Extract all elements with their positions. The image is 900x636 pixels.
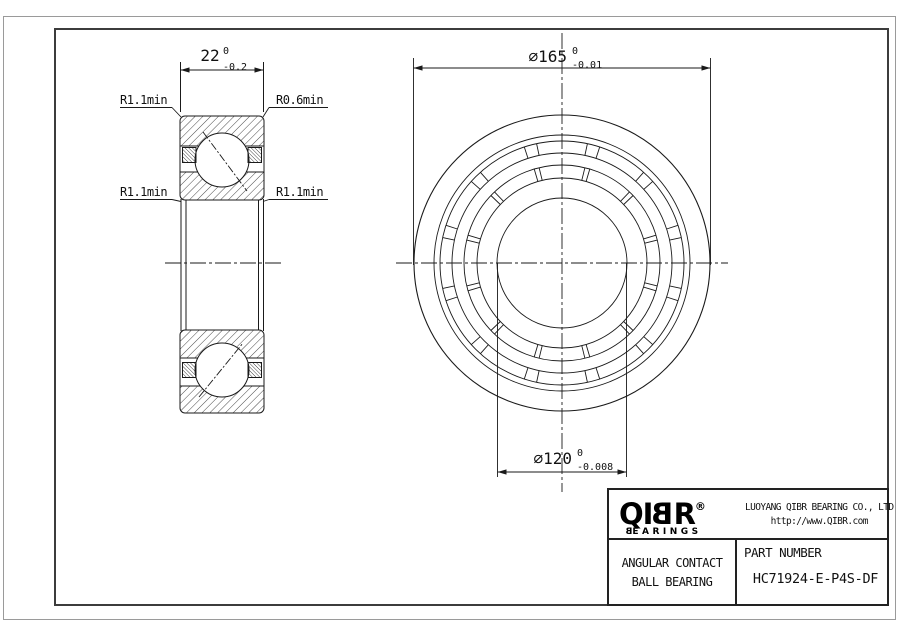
width-dim-value: 22 [200, 46, 219, 65]
title-block-detail-row: ANGULAR CONTACT BALL BEARING PART NUMBER… [609, 540, 887, 604]
fillet-label-top-right: R0.6min [276, 93, 323, 107]
bore-dim-value: ∅120 [533, 449, 572, 468]
section-top-assembly [180, 116, 264, 200]
ball-top [195, 133, 249, 187]
dimension-width [181, 62, 264, 112]
logo-wordmark: QIBR® [619, 492, 745, 529]
part-number-cell: PART NUMBER HC71924-E-P4S-DF [737, 540, 887, 604]
title-block: QIBR® BEARINGS LUOYANG QIBR BEARING CO.,… [607, 488, 889, 606]
od-dim-value: ∅165 [528, 47, 567, 66]
fillet-label-mid-left: R1.1min [120, 185, 167, 199]
bore-dim-tol-upper: 0 [577, 448, 583, 459]
company-website: http://www.QIBR.com [771, 516, 868, 527]
registered-trademark-icon: ® [695, 500, 706, 513]
cage-top-left [183, 148, 197, 163]
od-dim-tol-upper: 0 [572, 46, 578, 57]
cage-top-right [248, 148, 262, 163]
od-dim-tol-lower: -0.01 [572, 60, 602, 71]
company-name: LUOYANG QIBR BEARING CO., LTD [745, 502, 893, 513]
cage-bottom-right [248, 363, 262, 378]
section-view [120, 62, 328, 413]
part-number-value: HC71924-E-P4S-DF [744, 571, 887, 587]
bore-dim-tol-lower: -0.008 [577, 462, 613, 473]
cage-bottom-left [183, 363, 197, 378]
bearing-type-line2: BALL BEARING [632, 575, 713, 589]
bearing-type-cell: ANGULAR CONTACT BALL BEARING [609, 540, 737, 604]
fillet-label-top-left: R1.1min [120, 93, 167, 107]
width-dim-tol-upper: 0 [223, 46, 229, 57]
width-dim-tol-lower: -0.2 [223, 62, 247, 73]
ball-bottom [195, 343, 249, 397]
logo-subtitle: BEARINGS [619, 527, 745, 537]
bearing-type-line1: ANGULAR CONTACT [622, 556, 723, 570]
front-view [396, 33, 728, 492]
title-block-header-row: QIBR® BEARINGS LUOYANG QIBR BEARING CO.,… [609, 490, 887, 540]
section-bottom-assembly [180, 330, 264, 413]
part-number-label: PART NUMBER [744, 545, 887, 560]
company-info: LUOYANG QIBR BEARING CO., LTD http://www… [745, 490, 893, 538]
qibr-logo: QIBR® BEARINGS [609, 490, 745, 538]
bore-walls [181, 199, 264, 331]
fillet-label-mid-right: R1.1min [276, 185, 323, 199]
drawing-sheet: 22 0 -0.2 R1.1min R0.6min R1.1min R1.1mi… [0, 0, 900, 636]
